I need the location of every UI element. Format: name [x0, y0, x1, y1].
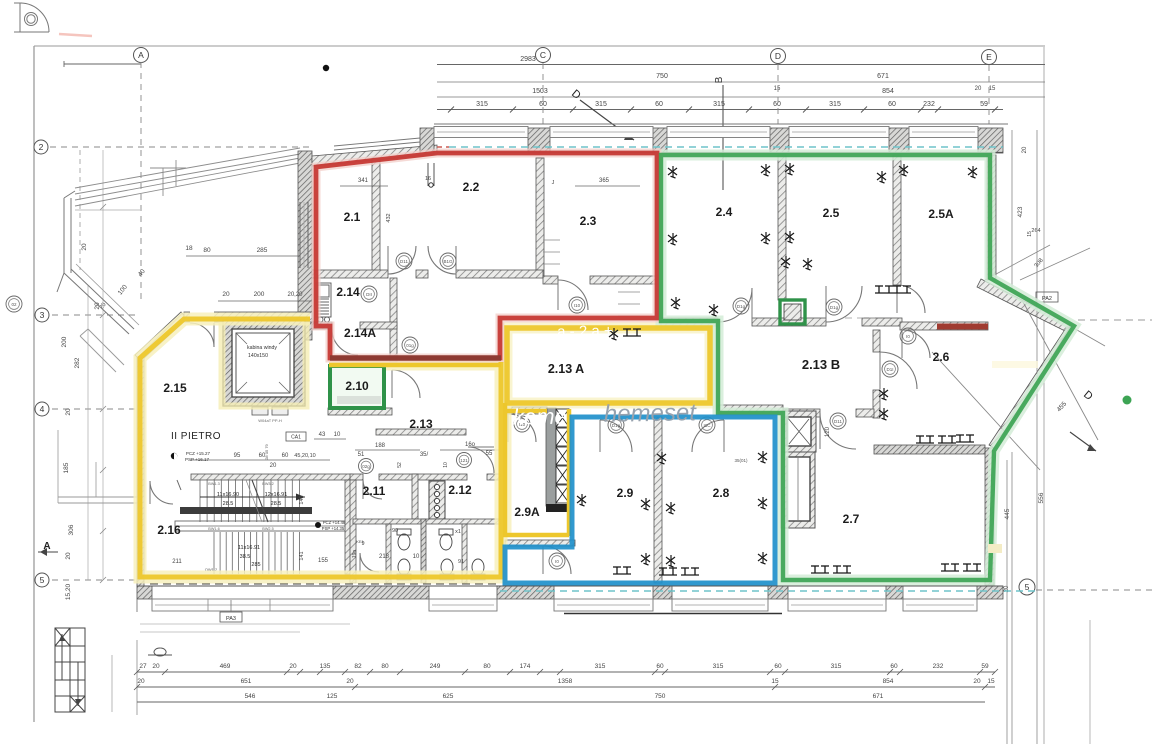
svg-text:232: 232: [923, 101, 935, 108]
svg-text:11x16.90: 11x16.90: [217, 492, 239, 498]
svg-text:2.9A: 2.9A: [514, 505, 540, 519]
svg-text:2.8: 2.8: [713, 486, 730, 500]
svg-text:20: 20: [973, 678, 981, 685]
svg-text:20: 20: [975, 86, 982, 92]
svg-text:854: 854: [883, 678, 894, 685]
svg-text:59: 59: [980, 101, 988, 108]
svg-text:12x16.91: 12x16.91: [265, 492, 288, 498]
svg-text:15: 15: [989, 86, 996, 92]
svg-text:2.4: 2.4: [716, 205, 733, 219]
svg-text:II PIETRO: II PIETRO: [171, 431, 221, 442]
svg-text:174: 174: [520, 663, 531, 670]
svg-text:16: 16: [425, 176, 431, 182]
svg-text:11x16.91: 11x16.91: [238, 545, 260, 551]
svg-text:kabina windy: kabina windy: [247, 345, 277, 351]
svg-text:PA2: PA2: [1042, 296, 1052, 302]
svg-text:J: J: [552, 180, 555, 186]
svg-text:02g: 02g: [362, 464, 370, 469]
svg-text:285: 285: [251, 562, 260, 568]
svg-text:35(01): 35(01): [734, 458, 748, 463]
svg-text:20: 20: [152, 663, 160, 670]
svg-text:60: 60: [655, 101, 663, 108]
svg-text:15: 15: [774, 86, 781, 92]
svg-text:315: 315: [476, 101, 488, 108]
svg-text:60: 60: [773, 101, 781, 108]
svg-text:60: 60: [282, 453, 289, 459]
svg-text:546: 546: [245, 693, 256, 700]
svg-text:20: 20: [1022, 146, 1028, 153]
svg-text:121: 121: [460, 458, 468, 463]
svg-text:155: 155: [318, 558, 329, 564]
svg-text:750: 750: [655, 693, 666, 700]
svg-text:125: 125: [327, 693, 338, 700]
svg-text:315: 315: [595, 663, 606, 670]
svg-text:28.5: 28.5: [223, 501, 234, 507]
svg-text:750: 750: [656, 73, 668, 80]
svg-text:I10: I10: [574, 303, 581, 308]
svg-text:BW3.2: BW3.2: [262, 482, 273, 486]
svg-text:CA1: CA1: [291, 435, 301, 441]
svg-text:2.5: 2.5: [823, 206, 840, 220]
svg-text:671: 671: [873, 693, 884, 700]
svg-text:D1g: D1g: [737, 304, 746, 309]
svg-text:2.7: 2.7: [843, 512, 860, 526]
svg-text:1503: 1503: [532, 88, 548, 95]
svg-text:315: 315: [595, 101, 607, 108]
svg-text:D1I: D1I: [886, 367, 893, 372]
svg-text:D: D: [775, 51, 781, 61]
svg-text:20: 20: [65, 408, 72, 416]
svg-text:43: 43: [319, 432, 326, 438]
svg-text:671: 671: [877, 73, 889, 80]
svg-text:60: 60: [888, 101, 896, 108]
svg-text:95: 95: [234, 453, 241, 459]
svg-text:2: 2: [39, 142, 44, 152]
svg-text:B1G: B1G: [443, 259, 453, 264]
svg-text:20: 20: [65, 552, 72, 560]
svg-text:x1: x1: [455, 529, 461, 535]
svg-text:423: 423: [1017, 206, 1024, 217]
svg-text:625: 625: [443, 693, 454, 700]
svg-text:651: 651: [241, 678, 252, 685]
svg-text:80: 80: [381, 663, 389, 670]
svg-text:27: 27: [139, 663, 147, 670]
svg-text:82: 82: [354, 663, 362, 670]
svg-text:2.9: 2.9: [617, 486, 634, 500]
svg-text:2.13: 2.13: [409, 417, 433, 431]
svg-text:249: 249: [430, 663, 441, 670]
svg-text:2.6: 2.6: [933, 350, 950, 364]
svg-text:I0: I0: [906, 334, 910, 339]
svg-text:PSP +14.35: PSP +14.35: [322, 526, 345, 531]
svg-text:80: 80: [483, 663, 491, 670]
svg-text:52: 52: [397, 462, 403, 468]
svg-text:211: 211: [172, 559, 182, 565]
svg-text:I0: I0: [555, 559, 559, 564]
svg-text:PCZ +15.27: PCZ +15.27: [186, 451, 211, 456]
svg-text:28.5: 28.5: [271, 501, 282, 507]
svg-text:556: 556: [1038, 492, 1045, 503]
svg-text:16o: 16o: [465, 442, 476, 448]
svg-text:2.3: 2.3: [580, 214, 597, 228]
svg-text:3: 3: [40, 310, 45, 320]
svg-text:200: 200: [254, 291, 265, 298]
svg-text:15: 15: [987, 678, 995, 685]
svg-text:20: 20: [289, 663, 297, 670]
svg-text:80: 80: [203, 247, 211, 254]
svg-text:91: 91: [458, 559, 464, 565]
svg-text:2.13 B: 2.13 B: [802, 357, 840, 372]
svg-text:10: 10: [334, 432, 341, 438]
svg-text:120: 120: [825, 426, 831, 437]
svg-text:W04aT PP-H: W04aT PP-H: [258, 418, 282, 423]
svg-text:306: 306: [68, 524, 75, 535]
svg-text:60: 60: [259, 453, 266, 459]
svg-text:2.12: 2.12: [448, 483, 472, 497]
svg-text:D1g: D1g: [830, 305, 839, 310]
svg-text:2.14A: 2.14A: [344, 326, 376, 340]
svg-text:341: 341: [358, 178, 369, 184]
svg-text:2.14: 2.14: [336, 285, 360, 299]
svg-text:38.5: 38.5: [240, 554, 251, 560]
svg-text:2.15: 2.15: [163, 381, 187, 395]
svg-text:2.16: 2.16: [157, 523, 181, 537]
svg-text:a - 2 a +: a - 2 a +: [557, 323, 613, 341]
svg-text:188: 188: [375, 443, 386, 449]
svg-text:185: 185: [63, 462, 70, 473]
svg-text:20: 20: [346, 678, 354, 685]
svg-text:D11: D11: [834, 419, 842, 424]
svg-text:60: 60: [539, 101, 547, 108]
svg-text:D11: D11: [400, 259, 408, 264]
svg-text:20: 20: [222, 291, 230, 298]
svg-text:15,20: 15,20: [65, 583, 72, 600]
svg-text:854: 854: [882, 88, 894, 95]
svg-text:35/: 35/: [420, 452, 429, 458]
svg-text:10: 10: [443, 462, 449, 468]
svg-text:2.13 A: 2.13 A: [548, 362, 584, 376]
svg-text:B: B: [714, 76, 725, 83]
svg-text:PSP +16.17: PSP +16.17: [185, 457, 210, 462]
svg-text:2.10: 2.10: [345, 379, 369, 393]
svg-text:315: 315: [829, 101, 841, 108]
svg-text:BW2.5: BW2.5: [262, 527, 273, 531]
svg-text:315: 315: [831, 663, 842, 670]
svg-text:282: 282: [74, 357, 81, 368]
svg-text:2.2: 2.2: [463, 180, 480, 194]
svg-text:285: 285: [257, 247, 268, 254]
svg-text:PA3: PA3: [226, 616, 236, 622]
svg-text:E: E: [986, 52, 992, 62]
svg-text:5: 5: [40, 575, 45, 585]
svg-text:1358: 1358: [558, 678, 573, 685]
svg-text:141: 141: [299, 551, 305, 560]
svg-text:200: 200: [61, 336, 68, 347]
svg-text:141: 141: [299, 495, 305, 504]
svg-text:hemeset: hemeset: [604, 399, 698, 428]
svg-text:2.1: 2.1: [344, 210, 361, 224]
svg-text:PCZ +14.48: PCZ +14.48: [323, 520, 346, 525]
svg-text:10: 10: [413, 554, 420, 560]
svg-text:20: 20: [81, 243, 88, 251]
svg-text:432: 432: [386, 213, 392, 222]
svg-text:4: 4: [40, 404, 45, 414]
svg-text:19o: 19o: [352, 550, 358, 559]
svg-text:I1C: I1C: [703, 423, 711, 428]
svg-text:264: 264: [1031, 228, 1040, 234]
svg-text:20: 20: [137, 678, 145, 685]
svg-text:469: 469: [220, 663, 231, 670]
svg-text:BW1.3: BW1.3: [208, 482, 219, 486]
svg-text:55: 55: [486, 451, 493, 457]
svg-text:20: 20: [270, 463, 277, 469]
svg-text:KE1: KE1: [356, 539, 364, 544]
svg-text:45,20,10: 45,20,10: [294, 453, 315, 459]
svg-text:135: 135: [320, 663, 331, 670]
svg-text:20,20: 20,20: [287, 292, 303, 298]
svg-text:DII: DII: [366, 292, 372, 297]
svg-text:2.11: 2.11: [363, 484, 386, 498]
svg-text:A: A: [138, 50, 144, 60]
svg-text:02: 02: [11, 302, 17, 307]
svg-text:365: 365: [599, 178, 610, 184]
svg-text:90: 90: [392, 528, 398, 534]
svg-text:51: 51: [358, 452, 365, 458]
svg-text:C: C: [540, 50, 546, 60]
svg-text:218: 218: [379, 554, 390, 560]
svg-text:18: 18: [185, 245, 193, 252]
svg-text:60: 60: [890, 663, 898, 670]
svg-text:140x150: 140x150: [248, 353, 268, 359]
svg-text:2.5A: 2.5A: [928, 207, 954, 221]
svg-text:2983: 2983: [520, 56, 536, 63]
svg-text:01g: 01g: [406, 343, 414, 348]
svg-text:keme: keme: [513, 404, 567, 430]
svg-text:445: 445: [1004, 508, 1011, 519]
svg-text:315: 315: [713, 663, 724, 670]
svg-text:BW1.6: BW1.6: [208, 527, 219, 531]
svg-text:60: 60: [774, 663, 782, 670]
svg-text:232: 232: [933, 663, 944, 670]
